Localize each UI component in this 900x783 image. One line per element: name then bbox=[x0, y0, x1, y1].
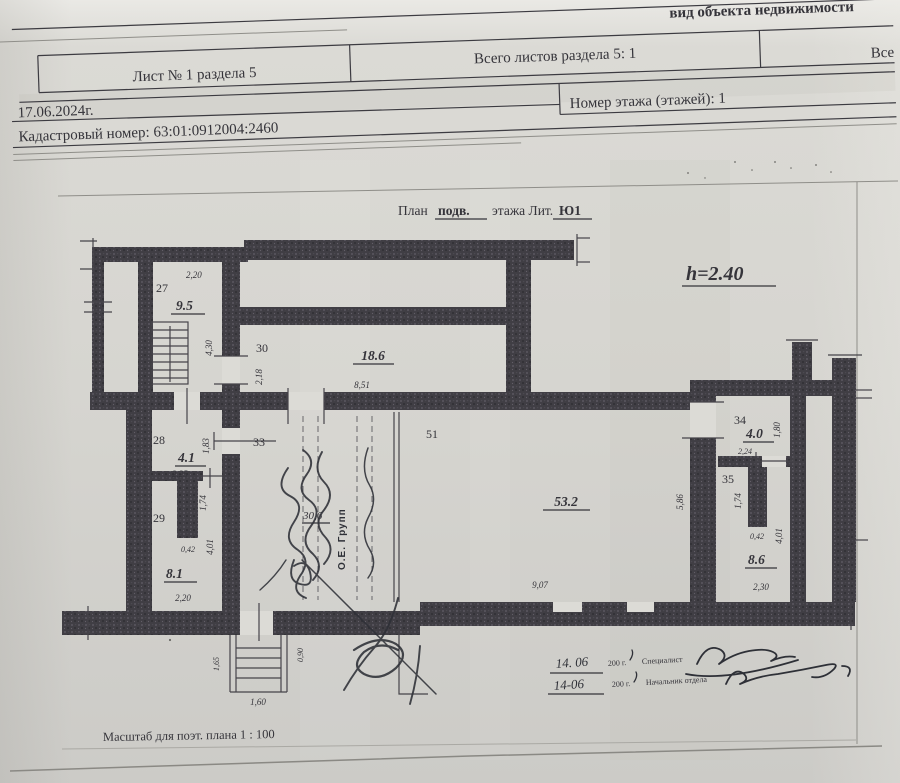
document-scan: вид объекта недвижимости Лист № 1 раздел… bbox=[0, 0, 900, 783]
dim-door: 1,83 bbox=[201, 438, 211, 454]
room-area: 8.1 bbox=[166, 566, 183, 581]
room-number: 29 bbox=[153, 511, 165, 525]
dim-bottom: 2,30 bbox=[753, 582, 769, 592]
dim-bottom: 8,51 bbox=[354, 380, 370, 390]
room-area: 4.1 bbox=[177, 450, 195, 465]
room-area: 8.6 bbox=[748, 552, 765, 567]
plan-title-prefix: План bbox=[398, 203, 428, 218]
dim-bottom: 9,07 bbox=[532, 580, 548, 590]
dim-right: 4,30 bbox=[204, 340, 214, 356]
sign1-date: 14. 06 bbox=[555, 654, 589, 671]
dim-right: 4,01 bbox=[774, 528, 784, 544]
dim-left: 1,65 bbox=[212, 657, 221, 671]
room-area: 18.6 bbox=[361, 348, 385, 363]
dim-opening: 0,90 bbox=[296, 648, 305, 662]
room-number: 51 bbox=[426, 427, 438, 441]
sign2-year: 200 г. bbox=[612, 679, 631, 689]
svg-text:h=2.40: h=2.40 bbox=[686, 263, 744, 285]
scale-note: Масштаб для поэт. плана 1 : 100 bbox=[103, 727, 275, 744]
dim-left: 2,18 bbox=[254, 369, 264, 385]
room-number: 27 bbox=[156, 281, 168, 295]
dim-right: 5,86 bbox=[675, 494, 685, 510]
plan-title-floor-type: подв. bbox=[438, 203, 470, 218]
dim-bottom: 2,20 bbox=[175, 593, 191, 603]
dim-top: 2,20 bbox=[186, 270, 202, 280]
dim-stub: 1,74 bbox=[733, 493, 743, 509]
room-area: 53.2 bbox=[554, 494, 578, 509]
plan-title-liter: Ю1 bbox=[559, 203, 581, 218]
room-number: 35 bbox=[722, 472, 734, 486]
room-number: 34 bbox=[734, 413, 746, 427]
room-number: 33 bbox=[253, 435, 265, 449]
room-number: 30 bbox=[256, 341, 268, 355]
dim-stub-width: 0,42 bbox=[181, 545, 195, 554]
vertical-stamp-text: О.Е. Групп bbox=[337, 508, 348, 570]
dim-stub-width: 0,42 bbox=[750, 532, 764, 541]
room-area: 4.0 bbox=[745, 426, 763, 441]
plan-title: План подв. этажа Лит. Ю1 bbox=[398, 203, 592, 219]
dim-bottom: 1,60 bbox=[250, 697, 266, 707]
room-33: 33 bbox=[253, 435, 265, 449]
right-cell-truncated: Все bbox=[870, 45, 894, 62]
dim-bottom: 2,24 bbox=[738, 447, 752, 456]
room-number: 28 bbox=[153, 433, 165, 447]
survey-date: 17.06.2024г. bbox=[18, 103, 94, 122]
plan-title-middle: этажа Лит. bbox=[492, 203, 553, 218]
scanned-document-page: вид объекта недвижимости Лист № 1 раздел… bbox=[0, 0, 900, 783]
dim-right: 1,80 bbox=[772, 422, 782, 438]
dim-bottom: 2,25 bbox=[172, 469, 188, 479]
room-area: 9.5 bbox=[176, 298, 193, 313]
sign1-year: 200 г. bbox=[608, 658, 627, 668]
dim-stub: 1,74 bbox=[198, 495, 208, 511]
dim-right: 4,01 bbox=[205, 539, 215, 555]
sign2-date: 14-06 bbox=[553, 676, 585, 693]
